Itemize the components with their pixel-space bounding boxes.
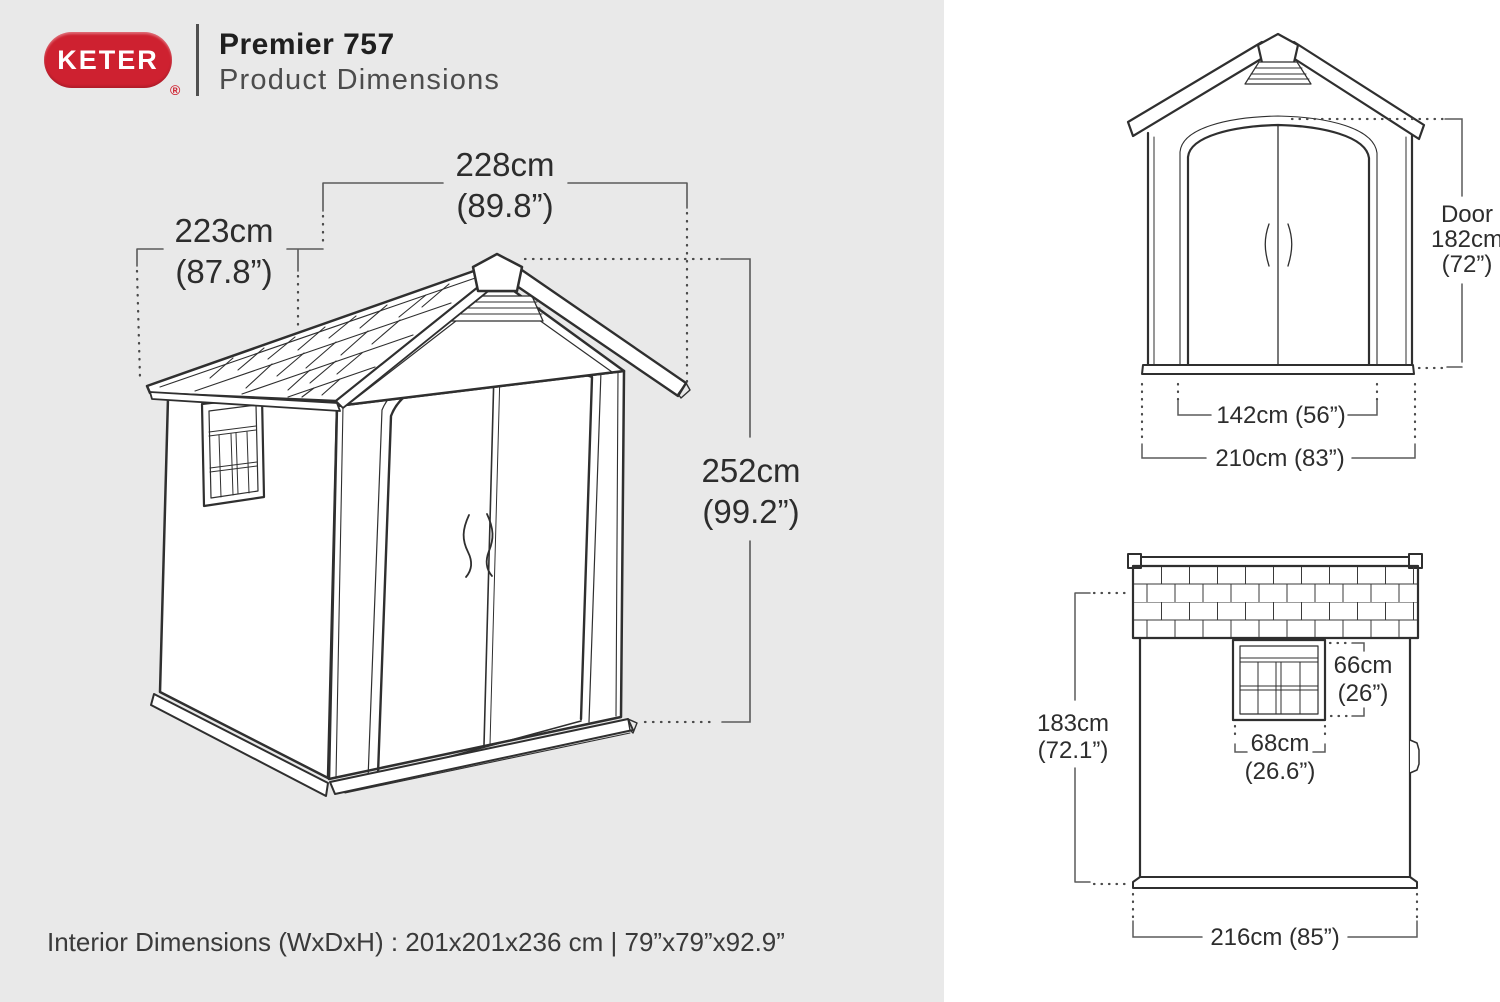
header-divider: [196, 24, 199, 96]
dim-window-height-label: 66cm (26”): [1334, 652, 1393, 708]
dim-door-height-label: Door 182cm (72”): [1431, 202, 1500, 277]
side-window: [1233, 640, 1325, 720]
front-door-handle-right: [1288, 224, 1292, 266]
product-subtitle: Product Dimensions: [219, 64, 500, 97]
side-view-drawing: [1128, 554, 1422, 888]
roof-cap: [473, 254, 522, 291]
dim-depth-label: 228cm (89.8”): [455, 144, 554, 226]
iso-side-window: [202, 397, 264, 506]
side-latch: [1410, 740, 1419, 773]
dim-door-width-label: 142cm (56”): [1216, 403, 1345, 428]
dim-overall-depth-label: 216cm (85”): [1210, 925, 1339, 950]
front-view-drawing: [1128, 34, 1424, 374]
shed-isometric-drawing: [147, 254, 690, 796]
interior-dimensions-text: Interior Dimensions (WxDxH) : 201x201x23…: [47, 927, 785, 958]
dim-window-width-label: 68cm (26.6”): [1245, 730, 1316, 786]
dim-height-label: 252cm (99.2”): [701, 450, 800, 532]
keter-logo: KETER: [44, 32, 172, 88]
dim-wall-height-label: 183cm (72.1”): [1037, 710, 1109, 764]
registered-mark: ®: [170, 82, 180, 98]
dim-overall-width-label: 210cm (83”): [1215, 446, 1344, 471]
product-title: Premier 757: [219, 28, 395, 62]
side-roof-shingle-band: [1133, 566, 1418, 638]
dim-width-label: 223cm (87.8”): [174, 210, 273, 292]
front-gable-vent: [1245, 62, 1311, 84]
front-door-handle-left: [1265, 224, 1269, 266]
brand-text: KETER: [57, 45, 159, 76]
